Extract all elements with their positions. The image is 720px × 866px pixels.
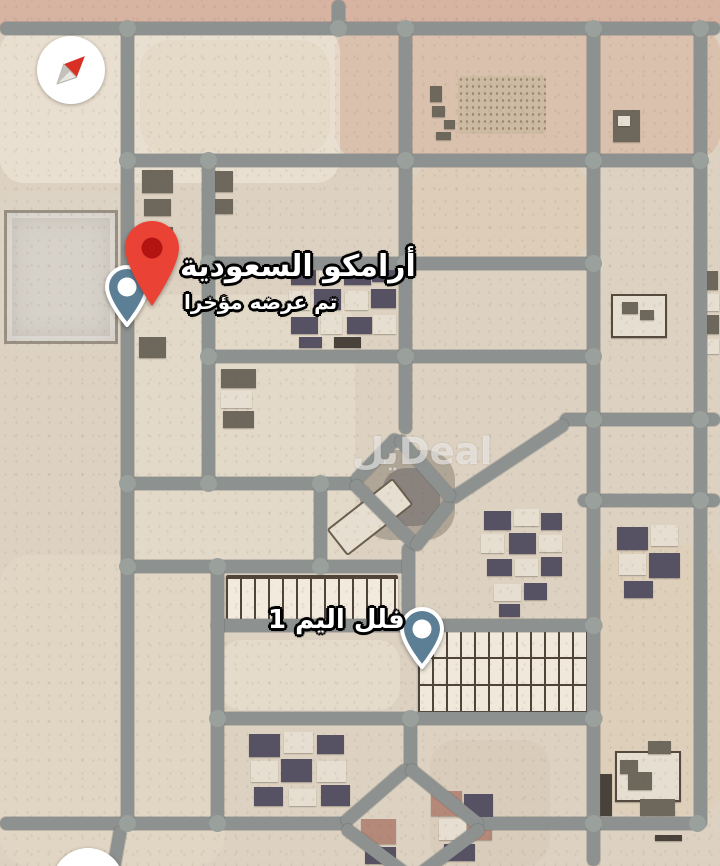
road-segment — [587, 22, 600, 866]
villa-place-marker[interactable] — [398, 607, 446, 669]
red-pin-marker[interactable] — [124, 220, 180, 308]
watermark: يلDeal — [352, 430, 492, 473]
road-junction — [200, 152, 217, 169]
road-junction — [330, 20, 347, 37]
road-junction — [585, 255, 602, 272]
road-segment — [121, 22, 134, 829]
road-junction — [585, 20, 602, 37]
road-junction — [209, 815, 226, 832]
road-junction — [585, 348, 602, 365]
road-segment — [121, 560, 414, 573]
villa-label[interactable]: فلل اليم 1 — [268, 606, 405, 635]
road-junction — [585, 710, 602, 727]
road-junction — [692, 411, 709, 428]
road-junction — [397, 152, 414, 169]
road-junction — [119, 475, 136, 492]
road-segment — [202, 154, 215, 489]
road-junction — [689, 815, 706, 832]
road-junction — [402, 710, 419, 727]
road-junction — [397, 348, 414, 365]
road-junction — [200, 348, 217, 365]
road-segment — [339, 821, 420, 866]
road-junction — [312, 475, 329, 492]
road-junction — [312, 558, 329, 575]
road-segment — [338, 761, 413, 829]
road-junction — [692, 152, 709, 169]
road-segment — [0, 22, 720, 35]
road-segment — [211, 560, 224, 829]
road-junction — [119, 20, 136, 37]
road-junction — [585, 815, 602, 832]
road-junction — [119, 815, 136, 832]
road-junction — [119, 558, 136, 575]
road-junction — [200, 475, 217, 492]
road-junction — [119, 152, 136, 169]
place-label-title[interactable]: أرامكو السعودية — [180, 250, 416, 283]
road-junction — [585, 152, 602, 169]
road-junction — [585, 492, 602, 509]
road-junction — [585, 617, 602, 634]
road-segment — [347, 476, 421, 550]
place-label-subtitle: تم عرضه مؤخرا — [184, 291, 337, 313]
road-junction — [209, 558, 226, 575]
road-segment — [403, 761, 486, 832]
road-segment — [408, 497, 456, 553]
road-segment — [410, 821, 487, 866]
road-junction — [692, 20, 709, 37]
map-canvas[interactable]: يلDeal أرامكو السعودية تم عرضه مؤخرا فلل… — [0, 0, 720, 866]
compass-button[interactable] — [37, 36, 105, 104]
road-segment — [0, 817, 348, 830]
road-junction — [692, 492, 709, 509]
road-junction — [209, 710, 226, 727]
compass-needle-icon — [48, 47, 94, 93]
road-junction — [397, 20, 414, 37]
road-segment — [399, 22, 412, 434]
road-junction — [585, 411, 602, 428]
